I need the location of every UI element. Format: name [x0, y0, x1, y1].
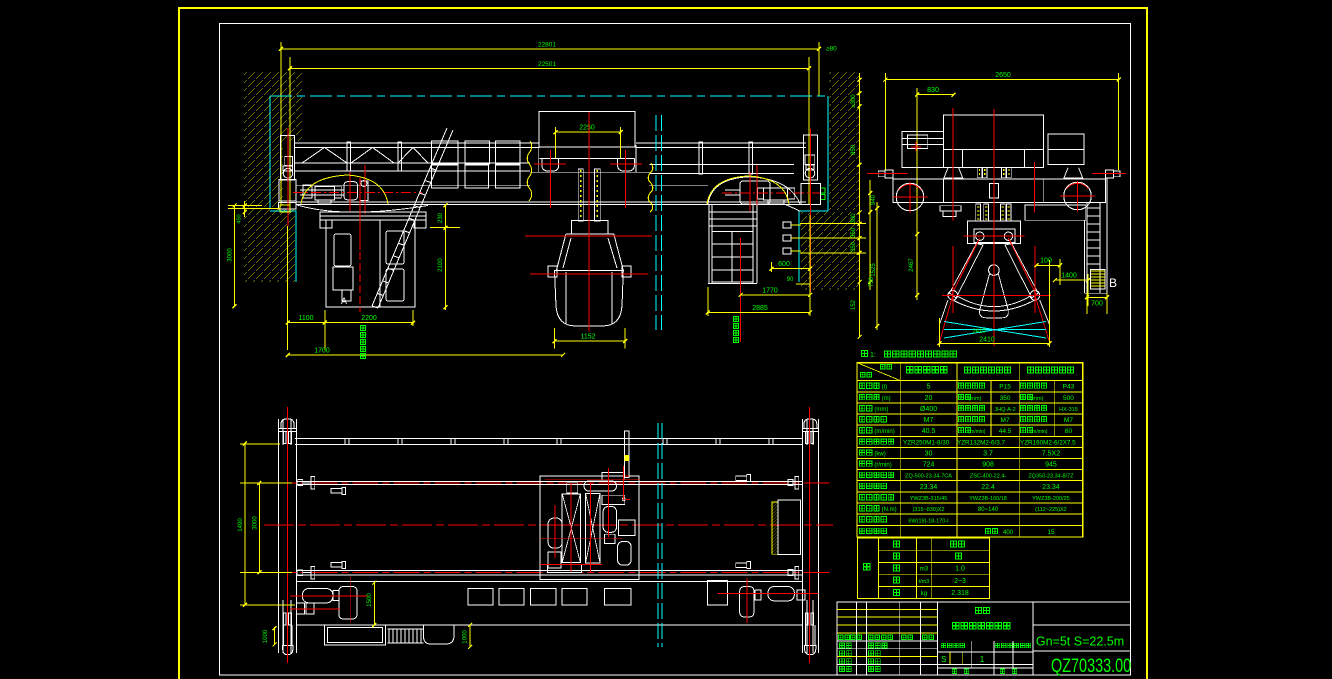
svg-text:ZQ-500-23.34-7CA: ZQ-500-23.34-7CA — [905, 474, 952, 480]
svg-text:YWZ3B-315/45: YWZ3B-315/45 — [910, 496, 948, 502]
svg-text:2410: 2410 — [972, 329, 986, 335]
svg-text:Gn=5t S=22.5m: Gn=5t S=22.5m — [1036, 635, 1124, 649]
svg-text:22801: 22801 — [538, 42, 556, 49]
svg-text:2410: 2410 — [979, 337, 995, 344]
svg-text:YWZ3B-200/25: YWZ3B-200/25 — [1032, 496, 1070, 502]
svg-text:(m/min): (m/min) — [969, 429, 986, 435]
svg-text:80~140: 80~140 — [978, 507, 999, 513]
svg-text:m3: m3 — [920, 567, 929, 573]
svg-text:HX-315: HX-315 — [1059, 407, 1078, 413]
svg-text:1700: 1700 — [314, 348, 330, 355]
svg-text:QZ70333.00: QZ70333.00 — [1051, 655, 1131, 676]
svg-text:850: 850 — [851, 144, 857, 155]
svg-text:6W(19)-18-170-I: 6W(19)-18-170-I — [908, 518, 949, 524]
svg-text:ZSC-400-22.4-: ZSC-400-22.4- — [970, 474, 1007, 480]
svg-text:YWZ3B-160/18: YWZ3B-160/18 — [969, 496, 1007, 502]
svg-text:JHQ-A-2: JHQ-A-2 — [994, 407, 1015, 413]
svg-text:(m/min): (m/min) — [1031, 429, 1048, 435]
svg-text:1400: 1400 — [1061, 273, 1077, 280]
svg-text:350: 350 — [851, 241, 857, 252]
svg-text:1490: 1490 — [238, 518, 244, 532]
svg-text:(t): (t) — [882, 385, 888, 391]
svg-text:3000: 3000 — [253, 516, 259, 530]
svg-text:≥300: ≥300 — [851, 94, 857, 108]
svg-text:44.5: 44.5 — [999, 428, 1012, 435]
svg-text:350: 350 — [851, 227, 857, 238]
svg-text:(315~830)X2: (315~830)X2 — [913, 507, 945, 513]
svg-text:3.7: 3.7 — [983, 450, 993, 457]
svg-text:30: 30 — [925, 450, 933, 457]
svg-text:60: 60 — [1065, 428, 1073, 435]
svg-text:1.0: 1.0 — [955, 566, 965, 573]
svg-text:ZQ350-23.34-8/7Z: ZQ350-23.34-8/7Z — [1028, 474, 1074, 480]
svg-text:1000: 1000 — [263, 629, 269, 643]
svg-text:22.4: 22.4 — [981, 484, 995, 491]
svg-text:908: 908 — [982, 461, 994, 468]
svg-text:1152: 1152 — [580, 334, 595, 341]
svg-text:2250: 2250 — [579, 125, 595, 132]
svg-text:5: 5 — [927, 384, 931, 391]
svg-text:(kw): (kw) — [874, 451, 885, 457]
svg-text:1:: 1: — [870, 352, 876, 359]
svg-text:450: 450 — [237, 214, 243, 223]
svg-text:B: B — [1109, 276, 1117, 290]
svg-text:152: 152 — [851, 299, 857, 310]
svg-text:22501: 22501 — [538, 61, 556, 68]
svg-text:1: 1 — [980, 655, 985, 664]
svg-text:YZR250M1-8/30: YZR250M1-8/30 — [903, 439, 950, 446]
svg-text:1500: 1500 — [367, 593, 373, 607]
svg-text:2200: 2200 — [361, 315, 377, 322]
svg-text:(mm): (mm) — [1031, 396, 1044, 402]
svg-text:830: 830 — [927, 87, 939, 94]
svg-text:500: 500 — [1063, 395, 1074, 402]
svg-text:700: 700 — [1091, 301, 1103, 308]
svg-text:100: 100 — [1040, 258, 1052, 265]
svg-text:2650: 2650 — [995, 72, 1011, 79]
svg-text:230: 230 — [438, 212, 444, 223]
svg-text:90: 90 — [787, 277, 794, 283]
svg-text:3000: 3000 — [228, 248, 234, 262]
svg-text:YZR132M2-6/3.7: YZR132M2-6/3.7 — [957, 439, 1005, 446]
svg-text:300: 300 — [851, 213, 857, 224]
svg-text:2~3: 2~3 — [954, 578, 966, 585]
svg-text:1525: 1525 — [871, 263, 877, 277]
svg-text:724: 724 — [923, 461, 935, 468]
svg-text:P15: P15 — [999, 384, 1011, 391]
svg-text:S: S — [941, 655, 946, 664]
svg-text:600: 600 — [778, 261, 790, 268]
svg-text:YZR160M2-6/2X7.5: YZR160M2-6/2X7.5 — [1020, 439, 1076, 446]
svg-text:(m/min): (m/min) — [874, 429, 894, 435]
svg-text:400: 400 — [1003, 530, 1014, 536]
svg-text:15: 15 — [1047, 529, 1055, 536]
svg-text:7.5X2: 7.5X2 — [1042, 450, 1060, 457]
svg-text:2885: 2885 — [752, 305, 768, 312]
svg-text:23.34: 23.34 — [920, 484, 938, 491]
svg-text:(112~225)X2: (112~225)X2 — [1035, 507, 1067, 513]
svg-text:23.34: 23.34 — [1042, 484, 1060, 491]
svg-text:940: 940 — [871, 194, 877, 205]
svg-text:(mm): (mm) — [874, 407, 888, 413]
svg-text:750: 750 — [869, 276, 875, 287]
svg-text:M7: M7 — [924, 417, 934, 424]
svg-text:2.318: 2.318 — [951, 590, 969, 597]
svg-text:350: 350 — [1000, 395, 1011, 402]
svg-text:1100: 1100 — [298, 315, 313, 322]
svg-text:A: A — [341, 296, 347, 306]
svg-text:Ø400: Ø400 — [920, 406, 937, 413]
svg-text:2467: 2467 — [909, 258, 915, 272]
svg-text:kg: kg — [921, 591, 927, 597]
svg-text:(mm): (mm) — [969, 396, 982, 402]
svg-text:2100: 2100 — [438, 258, 444, 272]
svg-text:M7: M7 — [1001, 417, 1010, 424]
svg-text:t/m3: t/m3 — [919, 579, 930, 585]
svg-text:≥80: ≥80 — [826, 46, 837, 53]
svg-text:1770: 1770 — [762, 288, 778, 295]
svg-text:20: 20 — [925, 395, 933, 402]
svg-text:M7: M7 — [1064, 417, 1073, 424]
svg-text:(r/min): (r/min) — [874, 462, 891, 468]
svg-text:P43: P43 — [1063, 384, 1075, 391]
svg-text:945: 945 — [1045, 461, 1057, 468]
svg-text:1000: 1000 — [463, 630, 469, 644]
svg-text:40.5: 40.5 — [922, 428, 936, 435]
svg-text:(N.m): (N.m) — [882, 507, 897, 513]
svg-text:(m): (m) — [882, 396, 891, 402]
